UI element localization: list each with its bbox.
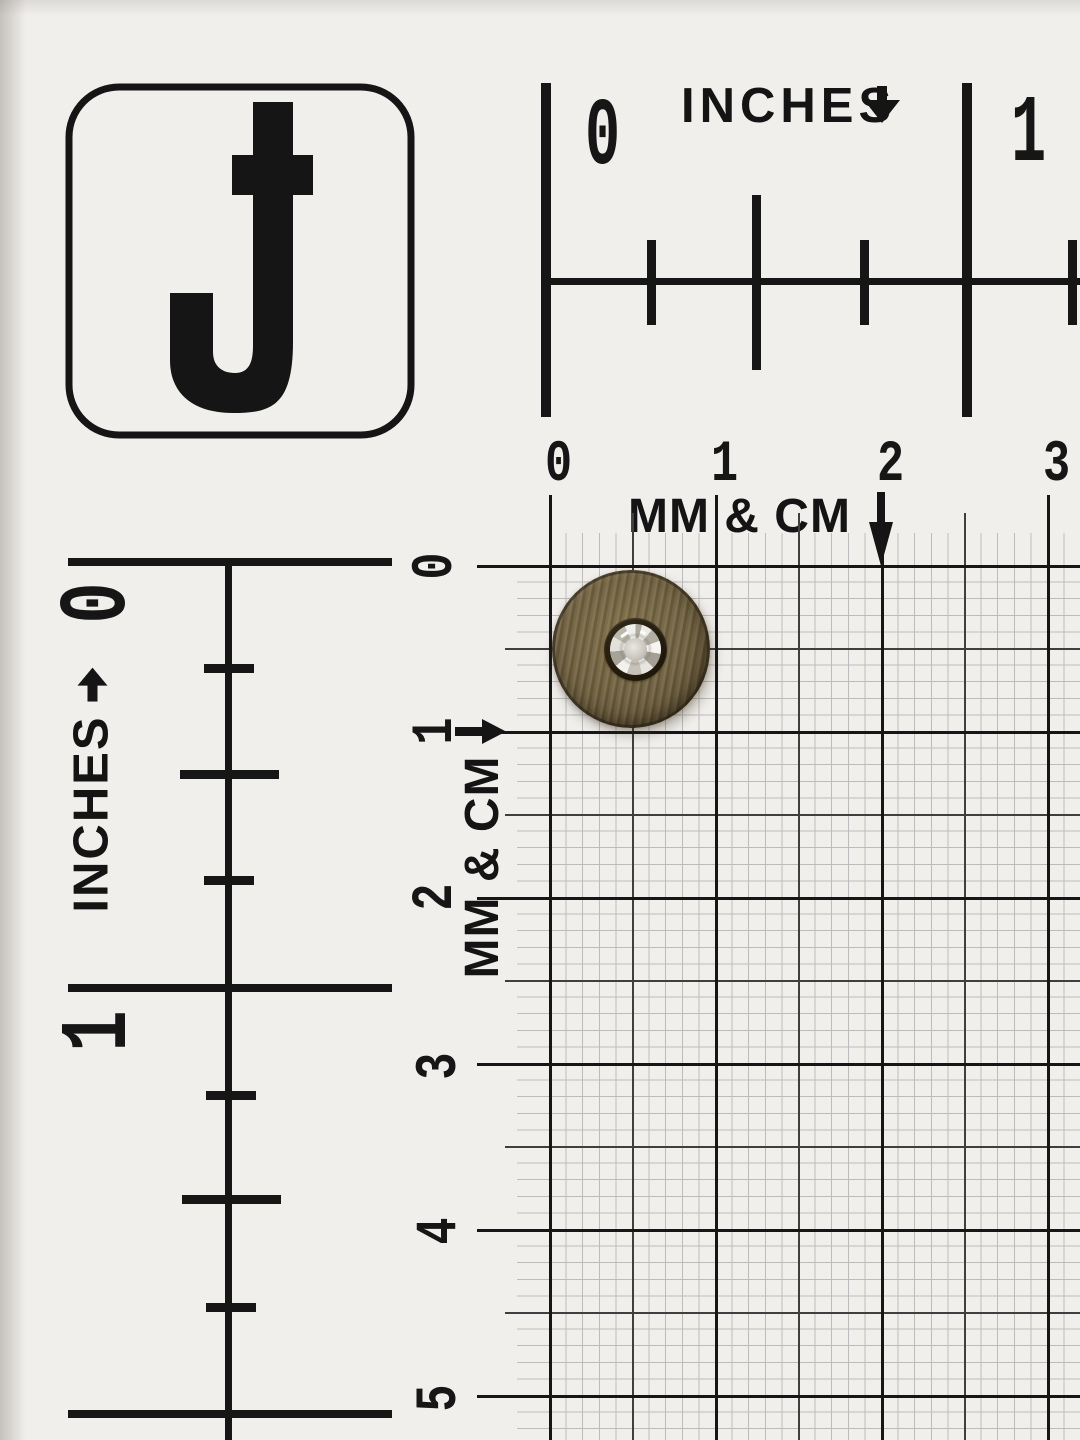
left-inch-tick-one-three-quarter — [206, 1303, 256, 1312]
inch-number-1: 1 — [1011, 87, 1046, 183]
rhinestone-table-facet — [624, 638, 647, 661]
right-arrow-icon — [455, 719, 506, 744]
left-inch-tick-one-quarter — [206, 1091, 256, 1100]
mm-cm-vertical-label: MM & CM — [459, 756, 507, 979]
left-inch-tick-2 — [68, 1410, 392, 1418]
measuring-card-photo: 0 1 INCHES 0 1 2 3 MM & CM 0 1 2 3 4 5 M… — [0, 0, 1080, 1440]
inch-tick-one-quarter — [1068, 240, 1077, 325]
inch-baseline — [541, 278, 1080, 285]
logo-letter-j — [170, 102, 313, 413]
left-inch-tick-one-half — [182, 1195, 281, 1204]
logo-box — [65, 83, 415, 439]
inch-tick-half — [752, 195, 761, 370]
grid-row-number-4: 4 — [412, 1217, 470, 1244]
inch-tick-quarter — [647, 240, 656, 325]
inch-number-0: 0 — [585, 90, 620, 186]
inch-tick-1 — [962, 83, 972, 417]
grid-row-number-3: 3 — [412, 1052, 470, 1079]
grid-row-number-5: 5 — [412, 1384, 470, 1411]
inch-tick-three-quarter — [860, 240, 869, 325]
inches-vertical-label-group: INCHES — [68, 667, 117, 912]
left-inch-tick-0 — [68, 558, 392, 566]
left-inch-tick-half — [180, 770, 279, 779]
cm-number-0: 0 — [545, 437, 572, 495]
sparkle-highlight — [640, 630, 647, 635]
left-inch-tick-1 — [68, 984, 392, 992]
cm-number-1: 1 — [711, 437, 738, 495]
left-inch-number-0: 0 — [51, 582, 147, 623]
down-arrow-icon — [864, 86, 900, 123]
sparkle-highlight — [620, 631, 629, 639]
paper-edge-shadow-top — [0, 0, 1080, 16]
brass-button — [552, 570, 710, 728]
grid-row-number-0: 0 — [408, 552, 466, 579]
grid-left-fringe-cm — [477, 565, 549, 1440]
cm-number-2: 2 — [877, 437, 904, 495]
left-inch-tick-three-quarter — [204, 876, 254, 885]
cm-number-3: 3 — [1043, 437, 1070, 495]
paper-edge-shadow-left — [0, 0, 26, 1440]
rhinestone-bezel — [604, 618, 667, 681]
grid-top-fringe-cm — [549, 495, 1080, 565]
inch-tick-0 — [541, 83, 551, 417]
left-inch-tick-quarter — [204, 664, 254, 673]
left-inch-number-1: 1 — [52, 1010, 148, 1051]
inches-vertical-label: INCHES — [68, 715, 117, 912]
up-arrow-icon — [77, 667, 107, 701]
rhinestone — [610, 624, 661, 675]
